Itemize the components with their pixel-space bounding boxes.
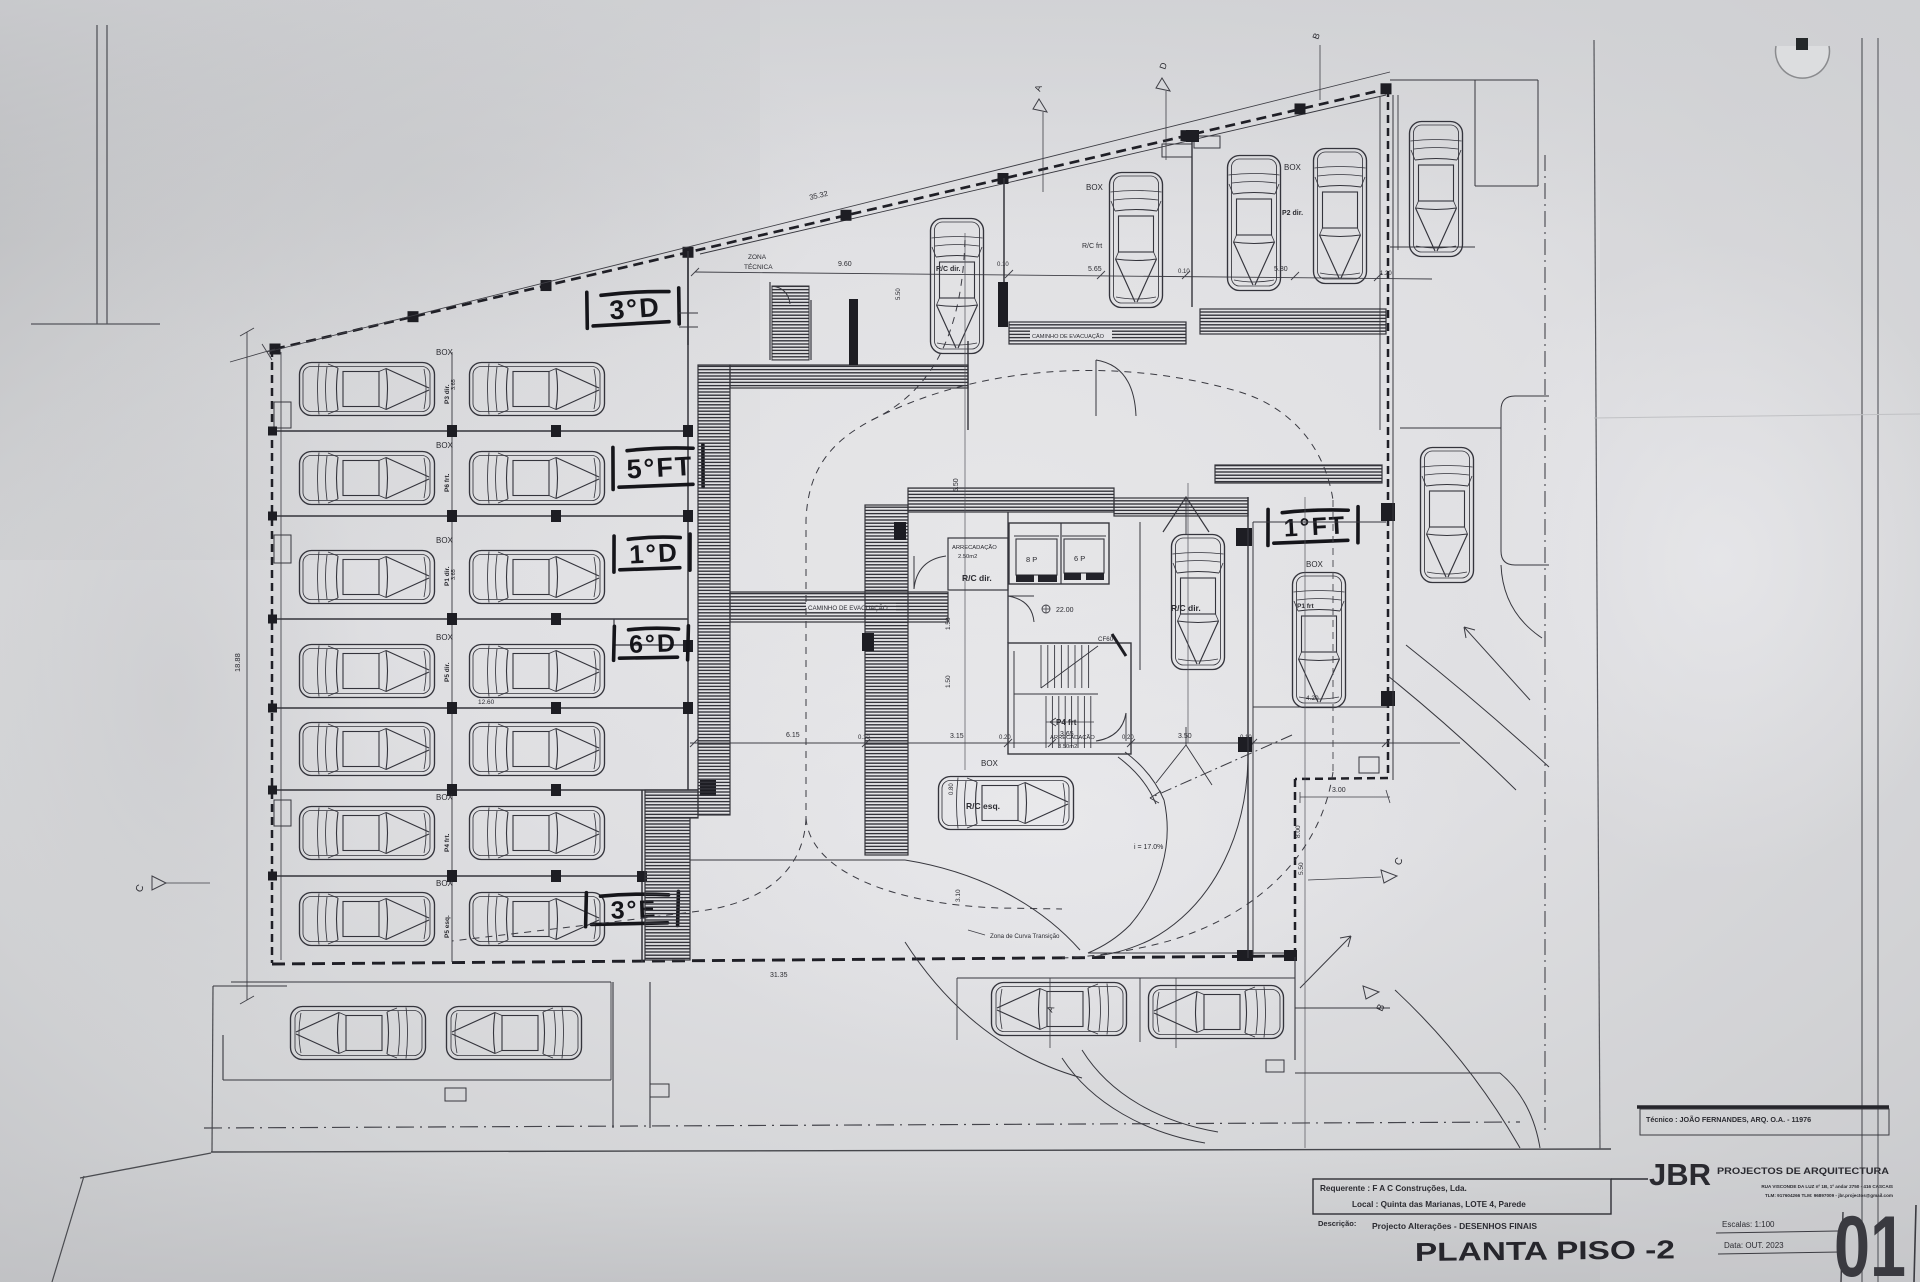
svg-text:8 P: 8 P (1026, 555, 1037, 564)
svg-text:Técnico : JOÃO FERNANDES, ARQ.: Técnico : JOÃO FERNANDES, ARQ. O.A. - 11… (1646, 1115, 1811, 1124)
svg-text:6°D: 6°D (629, 629, 678, 659)
svg-text:3°D: 3°D (608, 292, 661, 326)
svg-text:0.20: 0.20 (1122, 735, 1134, 741)
svg-text:3.50m2: 3.50m2 (1058, 744, 1077, 750)
svg-text:TLM: 917604266 TLM: 96897009 -: TLM: 917604266 TLM: 96897009 - jbr.proje… (1765, 1193, 1893, 1198)
svg-text:JBR: JBR (1649, 1157, 1711, 1192)
svg-text:9.60: 9.60 (838, 261, 852, 268)
svg-text:BOX: BOX (436, 441, 454, 450)
svg-text:P4 frt: P4 frt (1056, 718, 1077, 727)
svg-text:4.20: 4.20 (1306, 695, 1319, 702)
svg-text:1.50: 1.50 (945, 617, 952, 630)
svg-text:3.15: 3.15 (950, 733, 964, 740)
svg-text:Local : Quinta das Marianas, L: Local : Quinta das Marianas, LOTE 4, Par… (1352, 1200, 1526, 1209)
svg-text:BOX: BOX (436, 879, 454, 888)
svg-text:PROJECTOS DE ARQUITECTURA: PROJECTOS DE ARQUITECTURA (1717, 1166, 1890, 1176)
svg-text:PLANTA PISO -2: PLANTA PISO -2 (1415, 1234, 1675, 1267)
svg-text:0.10: 0.10 (997, 262, 1009, 268)
svg-text:R/C esq.: R/C esq. (966, 801, 1000, 811)
svg-text:P1 frt: P1 frt (1297, 603, 1314, 610)
svg-text:01: 01 (1834, 1199, 1906, 1282)
svg-text:P2 dir.: P2 dir. (1282, 210, 1303, 217)
svg-text:P5 esq.: P5 esq. (444, 915, 451, 938)
svg-text:BOX: BOX (1086, 183, 1104, 192)
svg-text:BOX: BOX (436, 348, 454, 357)
svg-text:2.50m2: 2.50m2 (958, 554, 977, 560)
svg-text:5.50: 5.50 (1298, 862, 1305, 875)
svg-text:Data: OUT. 2023: Data: OUT. 2023 (1724, 1241, 1784, 1250)
svg-text:BOX: BOX (1306, 560, 1324, 569)
svg-text:3.10: 3.10 (955, 889, 962, 902)
svg-text:R/C dir.: R/C dir. (962, 573, 992, 583)
svg-text:31.35: 31.35 (770, 972, 788, 979)
svg-text:ARRECADAÇÃO: ARRECADAÇÃO (1050, 734, 1095, 741)
svg-text:0.20: 0.20 (999, 735, 1011, 741)
svg-text:R/C dir.: R/C dir. (1171, 603, 1201, 613)
svg-text:18.88: 18.88 (233, 653, 242, 672)
svg-text:12.60: 12.60 (478, 699, 495, 706)
svg-text:Descrição:: Descrição: (1318, 1219, 1356, 1228)
svg-text:Projecto Alterações - DESENHOS: Projecto Alterações - DESENHOS FINAIS (1372, 1221, 1537, 1231)
svg-text:3.50: 3.50 (1178, 733, 1192, 740)
svg-text:P1 dir.: P1 dir. (444, 566, 451, 586)
svg-text:P3 dir.: P3 dir. (444, 384, 451, 404)
svg-text:CF60: CF60 (1098, 636, 1114, 643)
svg-text:BOX: BOX (436, 793, 454, 802)
svg-text:6 P: 6 P (1074, 554, 1085, 563)
svg-text:BOX: BOX (436, 536, 454, 545)
svg-text:ZONA: ZONA (748, 254, 767, 261)
svg-text:RUA VISCONDE DA LUZ nº 1B, 1º: RUA VISCONDE DA LUZ nº 1B, 1º andar 2750… (1761, 1184, 1893, 1189)
svg-text:P5 dir.: P5 dir. (444, 662, 451, 682)
svg-text:Escalas: 1:100: Escalas: 1:100 (1722, 1220, 1775, 1229)
svg-text:1.20: 1.20 (1380, 271, 1392, 277)
svg-text:5.50: 5.50 (953, 478, 960, 492)
svg-text:5.50: 5.50 (896, 288, 902, 300)
svg-text:BOX: BOX (981, 759, 999, 768)
svg-text:BOX: BOX (1284, 163, 1302, 172)
svg-text:3.65: 3.65 (451, 569, 457, 580)
svg-text:1°FT: 1°FT (1283, 511, 1347, 542)
svg-text:CAMINHO DE EVACUAÇÃO: CAMINHO DE EVACUAÇÃO (1032, 333, 1105, 340)
svg-text:8.00: 8.00 (1295, 825, 1302, 838)
svg-text:22.00: 22.00 (1056, 607, 1074, 614)
svg-text:1°D: 1°D (628, 537, 679, 570)
svg-text:TÉCNICA: TÉCNICA (744, 262, 773, 271)
svg-text:P6 frt.: P6 frt. (444, 473, 451, 492)
svg-text:3.65: 3.65 (451, 379, 457, 390)
svg-text:1.50: 1.50 (945, 675, 952, 688)
svg-text:6.15: 6.15 (786, 732, 800, 739)
svg-text:ARRECADAÇÃO: ARRECADAÇÃO (952, 544, 997, 551)
svg-text:i = 17.0%: i = 17.0% (1134, 844, 1163, 851)
svg-text:Zona de Curva Transição: Zona de Curva Transição (990, 933, 1060, 940)
svg-text:0.80: 0.80 (949, 783, 955, 795)
svg-text:BOX: BOX (436, 633, 454, 642)
svg-text:Requerente : F A C Construçõe: Requerente : F A C Construções, Lda. (1320, 1184, 1467, 1193)
svg-text:P4 frt.: P4 frt. (444, 833, 451, 852)
svg-text:5.65: 5.65 (1088, 266, 1102, 273)
svg-text:5°FT: 5°FT (626, 451, 694, 484)
svg-text:3.00: 3.00 (1332, 787, 1346, 794)
svg-text:R/C frt: R/C frt (1082, 243, 1102, 250)
